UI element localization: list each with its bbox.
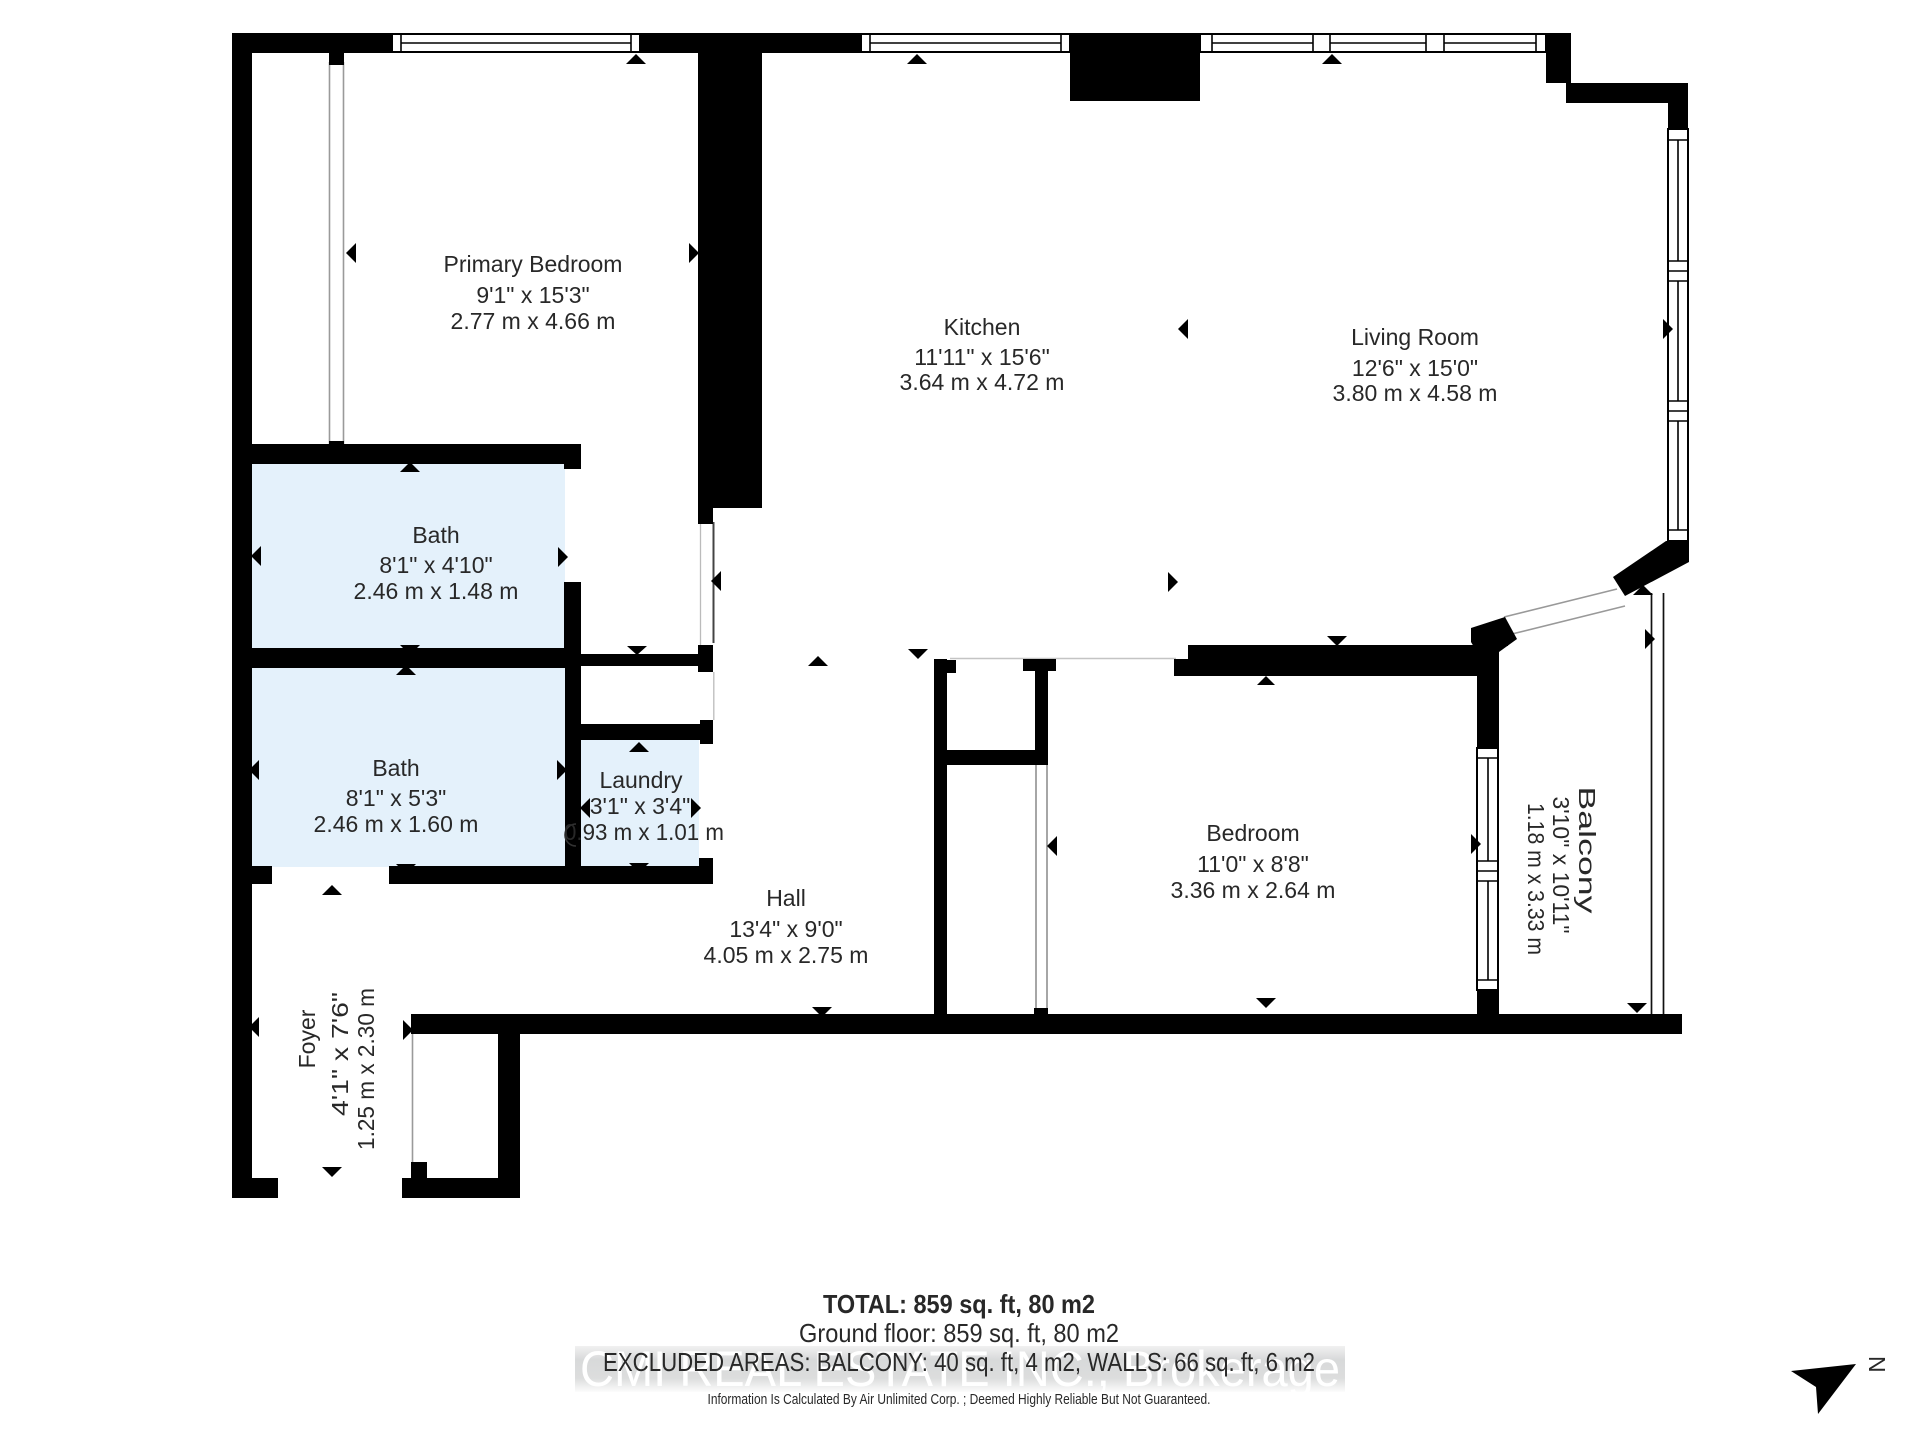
svg-text:3'10" x 10'11": 3'10" x 10'11" xyxy=(1548,797,1574,934)
svg-text:3.64 m x 4.72 m: 3.64 m x 4.72 m xyxy=(900,369,1065,395)
svg-text:Bath: Bath xyxy=(372,755,419,781)
svg-text:3.36 m x 2.64 m: 3.36 m x 2.64 m xyxy=(1171,877,1336,903)
svg-text:11'11" x 15'6": 11'11" x 15'6" xyxy=(914,344,1050,370)
svg-text:1.18 m x 3.33 m: 1.18 m x 3.33 m xyxy=(1523,803,1549,955)
svg-text:8'1" x 5'3": 8'1" x 5'3" xyxy=(346,785,447,811)
svg-text:2.77 m x 4.66 m: 2.77 m x 4.66 m xyxy=(451,308,616,334)
svg-text:2.46 m x 1.60 m: 2.46 m x 1.60 m xyxy=(314,811,479,837)
svg-text:Hall: Hall xyxy=(766,885,806,911)
svg-text:9'1" x 15'3": 9'1" x 15'3" xyxy=(476,282,589,308)
svg-text:4'1" x 7'6": 4'1" x 7'6" xyxy=(327,992,353,1116)
svg-text:Bath: Bath xyxy=(412,522,459,548)
svg-text:0.93 m x 1.01 m: 0.93 m x 1.01 m xyxy=(564,819,724,845)
svg-text:12'6" x 15'0": 12'6" x 15'0" xyxy=(1352,355,1478,381)
svg-text:11'0" x 8'8": 11'0" x 8'8" xyxy=(1197,851,1309,877)
svg-text:Bedroom: Bedroom xyxy=(1206,820,1299,846)
svg-text:Kitchen: Kitchen xyxy=(944,314,1021,340)
svg-text:Ground floor: 859 sq. ft, 80 m: Ground floor: 859 sq. ft, 80 m2 xyxy=(799,1318,1119,1348)
svg-text:2.46 m x 1.48 m: 2.46 m x 1.48 m xyxy=(354,578,519,604)
svg-text:3'1" x 3'4": 3'1" x 3'4" xyxy=(590,793,691,819)
svg-text:N: N xyxy=(1864,1356,1890,1373)
svg-text:Laundry: Laundry xyxy=(599,767,683,793)
svg-text:13'4" x 9'0": 13'4" x 9'0" xyxy=(729,916,842,942)
svg-text:3.80 m x 4.58 m: 3.80 m x 4.58 m xyxy=(1333,380,1498,406)
svg-text:Primary Bedroom: Primary Bedroom xyxy=(444,251,623,277)
svg-text:8'1" x 4'10": 8'1" x 4'10" xyxy=(379,552,492,578)
svg-text:Foyer: Foyer xyxy=(294,1009,320,1068)
svg-text:Balcony: Balcony xyxy=(1574,787,1600,915)
svg-text:Living Room: Living Room xyxy=(1351,324,1479,350)
svg-text:4.05 m x 2.75 m: 4.05 m x 2.75 m xyxy=(704,942,869,968)
svg-text:TOTAL: 859 sq. ft, 80 m2: TOTAL: 859 sq. ft, 80 m2 xyxy=(823,1289,1095,1319)
svg-text:Information Is Calculated By A: Information Is Calculated By Air Unlimit… xyxy=(708,1391,1211,1408)
svg-text:EXCLUDED AREAS: BALCONY: 40 sq: EXCLUDED AREAS: BALCONY: 40 sq. ft, 4 m2… xyxy=(603,1347,1315,1377)
svg-text:1.25 m x 2.30 m: 1.25 m x 2.30 m xyxy=(353,988,379,1150)
